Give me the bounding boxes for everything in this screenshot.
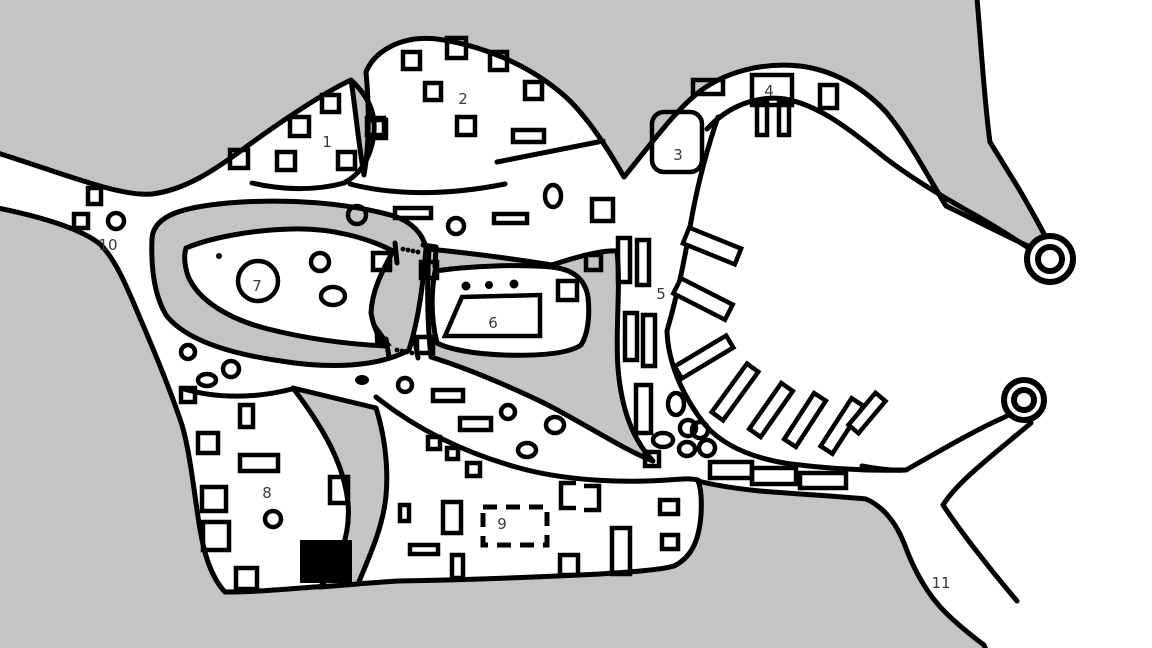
ferry-route-dotted-icon xyxy=(395,348,400,353)
dot-icon xyxy=(216,253,222,259)
ferry-route-dotted-icon xyxy=(410,351,415,356)
region-label-9: 9 xyxy=(497,515,507,533)
region-label-7: 7 xyxy=(252,277,262,295)
region-label-2: 2 xyxy=(458,90,468,108)
ferry-terminal-icon xyxy=(386,339,389,357)
dot-icon xyxy=(355,375,369,385)
dot-icon xyxy=(485,281,493,289)
ferry-route-dotted-icon xyxy=(411,249,416,254)
region-label-6: 6 xyxy=(488,314,498,332)
ferry-route-dotted-icon xyxy=(405,350,410,355)
dot-icon xyxy=(510,280,519,289)
region-label-8: 8 xyxy=(262,484,272,502)
ferry-route-dotted-icon xyxy=(400,349,405,354)
roundabout-icon xyxy=(1027,236,1073,282)
region-label-10: 10 xyxy=(98,236,117,254)
region-label-5: 5 xyxy=(656,285,666,303)
ferry-route-dotted-icon xyxy=(401,247,406,252)
ferry-route-dotted-icon xyxy=(416,250,421,255)
hand-drawn-map: 1 2 3 4 5 6 7 8 9 10 11 xyxy=(0,0,1152,648)
roundabout-icon xyxy=(1004,380,1044,420)
ferry-terminal-icon xyxy=(395,243,397,263)
ferry-route-dotted-icon xyxy=(406,248,411,253)
region-label-1: 1 xyxy=(322,133,332,151)
building-solid-icon xyxy=(300,540,352,583)
region-label-4: 4 xyxy=(764,82,774,100)
region-label-11: 11 xyxy=(931,574,950,592)
dot-icon xyxy=(462,282,471,291)
region-label-3: 3 xyxy=(673,146,683,164)
map-canvas: 1 2 3 4 5 6 7 8 9 10 11 xyxy=(0,0,1152,648)
